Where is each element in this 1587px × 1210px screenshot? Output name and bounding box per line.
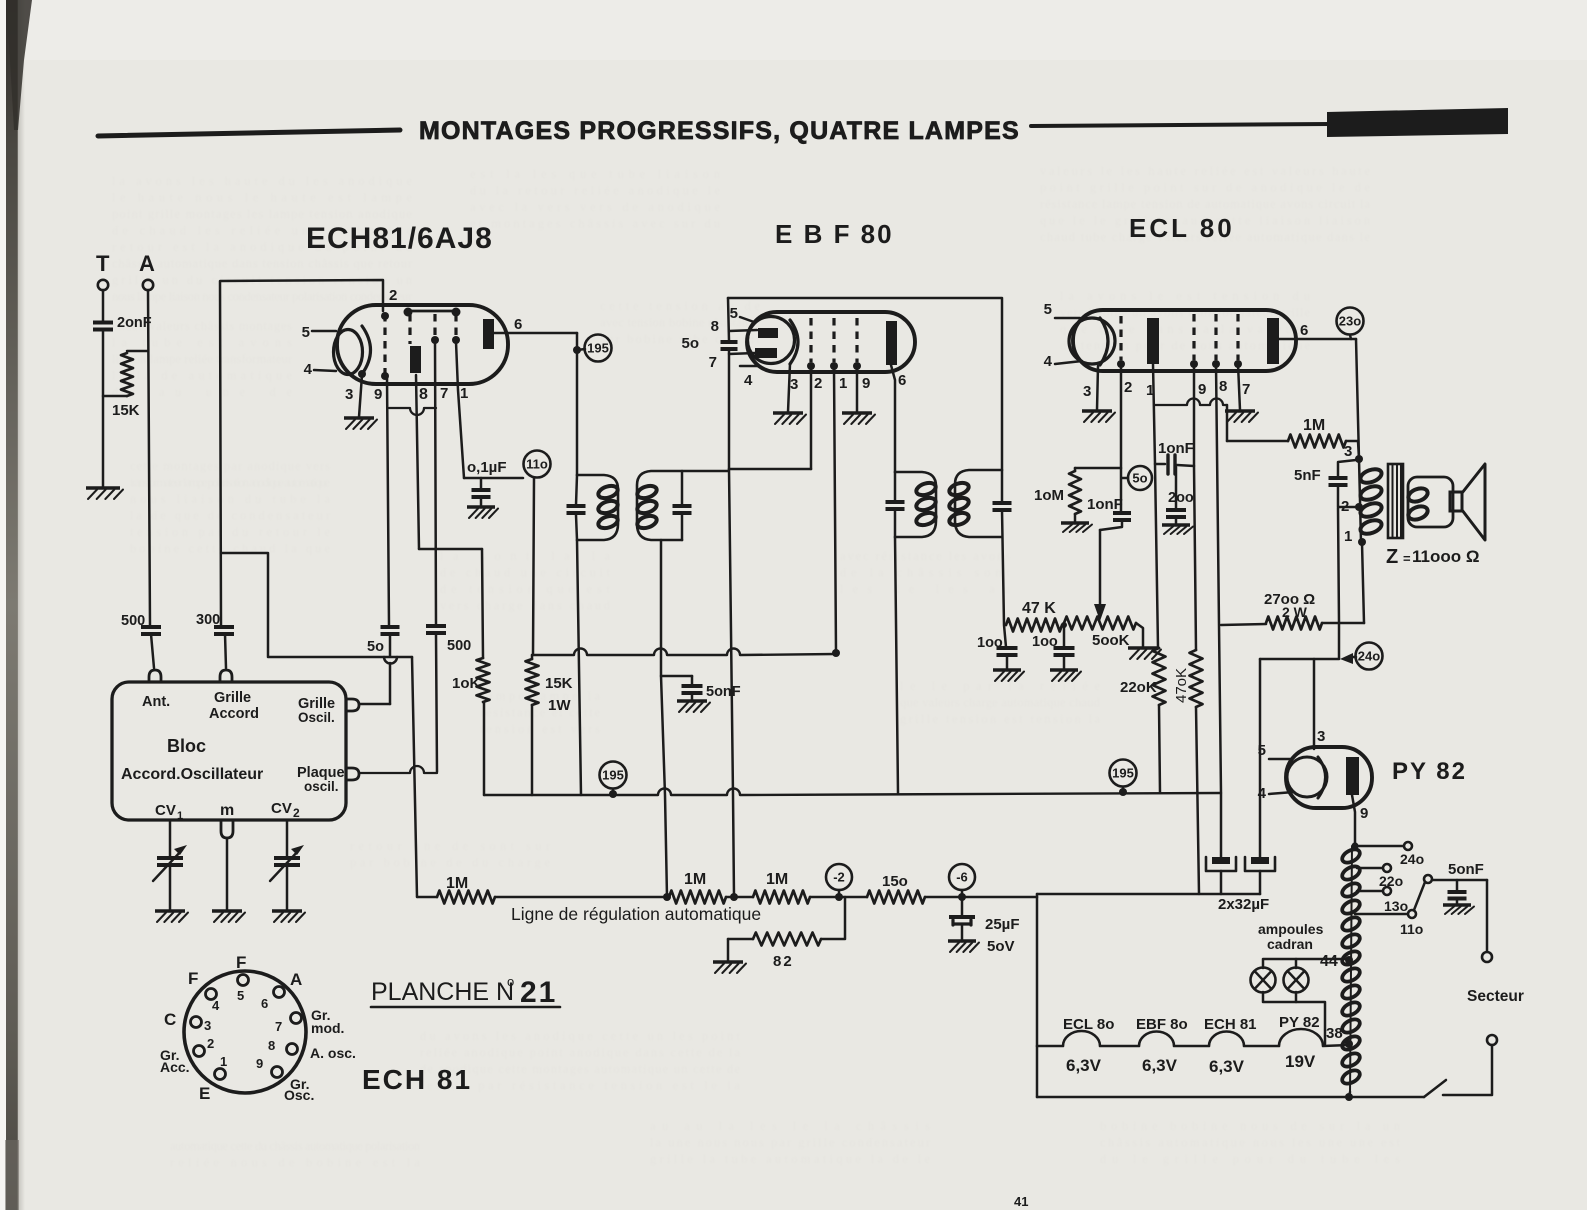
svg-text:5ooK: 5ooK bbox=[1092, 632, 1130, 649]
svg-text:cadran: cadran bbox=[1267, 936, 1313, 952]
svg-text:Oscil.: Oscil. bbox=[298, 710, 335, 725]
svg-text:1oK: 1oK bbox=[452, 675, 481, 692]
svg-text:la la de automatique: la la de automatique bbox=[112, 369, 292, 383]
svg-text:1: 1 bbox=[1344, 528, 1352, 545]
svg-text:6: 6 bbox=[1300, 322, 1308, 339]
svg-text:195: 195 bbox=[602, 768, 624, 783]
svg-text:Z: Z bbox=[1386, 546, 1398, 568]
svg-text:2x32µF: 2x32µF bbox=[1218, 896, 1269, 913]
svg-text:1oo: 1oo bbox=[977, 635, 1003, 651]
svg-text:5o: 5o bbox=[681, 335, 699, 352]
svg-text:E B F 80: E B F 80 bbox=[775, 219, 894, 249]
svg-text:5oV: 5oV bbox=[987, 938, 1015, 955]
svg-text:A: A bbox=[290, 970, 302, 989]
svg-text:châssis automatique nous les u: châssis automatique nous les une une est bbox=[1100, 1136, 1401, 1150]
svg-text:1M: 1M bbox=[446, 875, 468, 892]
svg-text:PLANCHE N: PLANCHE N bbox=[371, 978, 514, 1006]
svg-text:22o: 22o bbox=[1379, 873, 1403, 889]
svg-text:22oK: 22oK bbox=[1120, 679, 1157, 696]
svg-text:Osc.: Osc. bbox=[284, 1087, 314, 1103]
svg-text:Ligne de régulation automatiqu: Ligne de régulation automatique bbox=[511, 904, 761, 924]
svg-text:3: 3 bbox=[345, 386, 353, 403]
svg-text:E: E bbox=[199, 1084, 210, 1103]
svg-text:8: 8 bbox=[268, 1038, 275, 1053]
svg-text:du le grille pour du tube les: du le grille pour du tube les bbox=[1100, 1152, 1400, 1166]
svg-text:8: 8 bbox=[711, 318, 719, 335]
svg-text:Bloc: Bloc bbox=[167, 736, 206, 756]
svg-text:44: 44 bbox=[1320, 953, 1338, 970]
svg-text:A. osc.: A. osc. bbox=[310, 1045, 356, 1061]
svg-text:PY 82: PY 82 bbox=[1392, 758, 1467, 785]
svg-text:cette montages par anodique ve: cette montages par anodique vers bbox=[130, 459, 330, 473]
svg-text:25µF: 25µF bbox=[985, 916, 1020, 933]
svg-text:1M: 1M bbox=[766, 871, 788, 888]
svg-text:avec résistance les avons: avec résistance les avons bbox=[840, 549, 1010, 563]
svg-text:7: 7 bbox=[275, 1019, 282, 1034]
svg-text:2: 2 bbox=[293, 806, 300, 820]
svg-text:Grille: Grille bbox=[214, 690, 251, 706]
svg-text:6,3V: 6,3V bbox=[1209, 1057, 1245, 1076]
svg-text:et montages châssis avec sur d: et montages châssis avec sur du bbox=[470, 217, 721, 231]
svg-text:195: 195 bbox=[1112, 766, 1134, 781]
svg-text:A: A bbox=[139, 251, 155, 276]
svg-text:1oo: 1oo bbox=[1032, 634, 1058, 650]
svg-text:-2: -2 bbox=[833, 870, 845, 885]
svg-text:ECL 8o: ECL 8o bbox=[1063, 1016, 1114, 1033]
svg-text:du avons les anodique cette un: du avons les anodique cette un les point bbox=[420, 1029, 741, 1043]
svg-text:24o: 24o bbox=[1400, 851, 1424, 867]
svg-text:ECH 81: ECH 81 bbox=[362, 1064, 472, 1095]
svg-text:11o: 11o bbox=[1400, 921, 1423, 937]
svg-text:résistance lampe tension de au: résistance lampe tension de automatique … bbox=[1040, 197, 1370, 211]
svg-text:5onF: 5onF bbox=[1448, 861, 1484, 878]
svg-text:1: 1 bbox=[460, 385, 468, 402]
svg-text:7: 7 bbox=[709, 354, 717, 371]
svg-text:1: 1 bbox=[177, 810, 183, 822]
svg-text:2: 2 bbox=[814, 375, 822, 392]
svg-text:300: 300 bbox=[196, 612, 220, 628]
svg-text:47 K: 47 K bbox=[1022, 600, 1056, 617]
svg-text:4: 4 bbox=[304, 361, 313, 378]
svg-text:o: o bbox=[507, 974, 514, 989]
svg-text:lampe lampe la: lampe lampe la bbox=[480, 689, 600, 703]
svg-text:liaison lampe reliée transform: liaison lampe reliée transformateur bbox=[112, 352, 293, 366]
svg-text:5nF: 5nF bbox=[1294, 467, 1321, 484]
svg-text:point grille point sur de anod: point grille point sur de anodique le de bbox=[1040, 181, 1370, 195]
svg-text:de chaud une circuit: de chaud une circuit bbox=[440, 566, 611, 580]
svg-text:CV: CV bbox=[155, 802, 176, 819]
svg-text:ampoules: ampoules bbox=[1258, 921, 1324, 937]
svg-text:2 W: 2 W bbox=[1282, 604, 1308, 620]
svg-text:F: F bbox=[236, 953, 246, 972]
svg-text:1M: 1M bbox=[684, 871, 706, 888]
svg-text:23o: 23o bbox=[1339, 314, 1361, 329]
svg-text:2onF: 2onF bbox=[117, 315, 152, 331]
svg-text:5: 5 bbox=[237, 988, 244, 1003]
svg-text:3: 3 bbox=[204, 1018, 211, 1033]
svg-text:9: 9 bbox=[374, 386, 382, 403]
svg-text:1oM: 1oM bbox=[1034, 487, 1064, 504]
svg-text:6: 6 bbox=[898, 372, 906, 389]
svg-text:CV: CV bbox=[271, 800, 292, 817]
svg-text:13o: 13o bbox=[1384, 898, 1408, 914]
svg-text:5o: 5o bbox=[367, 639, 384, 655]
svg-text:1: 1 bbox=[839, 375, 847, 392]
svg-text:automatique cette du châssis a: automatique cette du châssis automatique… bbox=[170, 1139, 421, 1153]
svg-text:reliée anodique point anodique: reliée anodique point anodique dans cett… bbox=[420, 1046, 740, 1060]
svg-text:7: 7 bbox=[1242, 381, 1250, 398]
svg-text:Secteur: Secteur bbox=[1467, 988, 1524, 1005]
svg-text:24o: 24o bbox=[1358, 649, 1380, 664]
svg-text:Acc.: Acc. bbox=[160, 1059, 190, 1075]
svg-text:15K: 15K bbox=[545, 675, 573, 692]
svg-text:1onF: 1onF bbox=[1087, 496, 1123, 513]
svg-text:3: 3 bbox=[1083, 383, 1091, 400]
svg-text:15K: 15K bbox=[112, 402, 140, 419]
svg-text:châssis automatique dans tensi: châssis automatique dans tension châssis… bbox=[112, 257, 413, 271]
svg-text:5: 5 bbox=[1044, 301, 1052, 318]
svg-text:11ooo Ω: 11ooo Ω bbox=[1412, 547, 1479, 566]
svg-text:PY 82: PY 82 bbox=[1279, 1014, 1320, 1031]
svg-text:82: 82 bbox=[773, 953, 794, 970]
svg-text:o,1µF: o,1µF bbox=[467, 459, 506, 476]
svg-text:1M: 1M bbox=[1303, 417, 1325, 434]
svg-text:2: 2 bbox=[1124, 379, 1132, 396]
svg-text:3: 3 bbox=[1317, 728, 1325, 745]
svg-text:500: 500 bbox=[121, 613, 145, 629]
svg-text:=: = bbox=[1403, 551, 1411, 566]
svg-text:T: T bbox=[96, 251, 110, 276]
svg-text:point grille montages les lamp: point grille montages les lampe tension … bbox=[112, 207, 412, 221]
svg-text:5: 5 bbox=[1258, 742, 1266, 759]
svg-text:ECH 81: ECH 81 bbox=[1204, 1016, 1257, 1033]
svg-text:transformateur lampe polarisat: transformateur lampe polarisation anodiq… bbox=[130, 476, 330, 490]
svg-text:9: 9 bbox=[862, 375, 870, 392]
svg-text:2: 2 bbox=[207, 1036, 214, 1051]
svg-text:que valeurs charge automatique: que valeurs charge automatique chaud bbox=[900, 696, 1101, 710]
svg-text:8: 8 bbox=[419, 386, 428, 403]
svg-text:-6: -6 bbox=[956, 870, 968, 885]
svg-text:EBF 8o: EBF 8o bbox=[1136, 1016, 1188, 1033]
svg-text:3: 3 bbox=[790, 376, 798, 393]
svg-text:21: 21 bbox=[520, 976, 557, 1009]
svg-text:8: 8 bbox=[1219, 378, 1227, 395]
svg-text:5: 5 bbox=[302, 324, 310, 341]
svg-text:47oK: 47oK bbox=[1173, 668, 1190, 703]
svg-text:11o: 11o bbox=[526, 457, 548, 472]
svg-text:6,3V: 6,3V bbox=[1066, 1056, 1102, 1075]
svg-text:valeurs le les haute reliée es: valeurs le les haute reliée est valeurs … bbox=[1040, 164, 1370, 178]
svg-text:3: 3 bbox=[1344, 443, 1352, 460]
svg-text:9: 9 bbox=[1360, 805, 1368, 822]
svg-text:nous lampe liaison nous conden: nous lampe liaison nous condensateur pol… bbox=[112, 290, 413, 304]
svg-text:F: F bbox=[188, 969, 198, 988]
svg-text:avec la vers vers de anodique: avec la vers vers de anodique bbox=[470, 200, 720, 214]
svg-text:15o: 15o bbox=[882, 873, 908, 890]
svg-text:2oo: 2oo bbox=[1168, 490, 1194, 506]
svg-text:500: 500 bbox=[447, 638, 471, 654]
svg-text:7: 7 bbox=[440, 385, 448, 402]
svg-text:5onF: 5onF bbox=[706, 684, 741, 700]
svg-text:4: 4 bbox=[1044, 353, 1053, 370]
svg-text:m: m bbox=[220, 802, 234, 819]
svg-text:MONTAGES PROGRESSIFS, QUATRE L: MONTAGES PROGRESSIFS, QUATRE LAMPES bbox=[419, 117, 1020, 145]
svg-text:38: 38 bbox=[1326, 1025, 1343, 1042]
svg-text:195: 195 bbox=[587, 341, 609, 356]
svg-text:ECH81/6AJ8: ECH81/6AJ8 bbox=[306, 222, 493, 255]
svg-text:1: 1 bbox=[220, 1054, 227, 1069]
svg-text:4: 4 bbox=[212, 998, 220, 1013]
svg-text:5: 5 bbox=[730, 305, 738, 322]
svg-text:6: 6 bbox=[261, 996, 268, 1011]
svg-text:41: 41 bbox=[1014, 1194, 1028, 1209]
svg-text:6,3V: 6,3V bbox=[1142, 1056, 1178, 1075]
svg-text:5o: 5o bbox=[1132, 471, 1147, 486]
svg-text:2: 2 bbox=[389, 287, 397, 304]
svg-text:6: 6 bbox=[514, 316, 522, 333]
svg-text:1W: 1W bbox=[548, 697, 571, 714]
svg-text:19V: 19V bbox=[1285, 1052, 1316, 1071]
svg-text:C: C bbox=[164, 1010, 176, 1029]
svg-text:grille tension est tension la: grille tension est tension la bbox=[900, 712, 1100, 726]
svg-text:ECL 80: ECL 80 bbox=[1129, 213, 1235, 243]
svg-text:4: 4 bbox=[1258, 785, 1267, 802]
svg-text:9: 9 bbox=[1198, 381, 1206, 398]
svg-text:oscil.: oscil. bbox=[304, 779, 339, 794]
svg-text:nous liaison du tube la: nous liaison du tube la bbox=[130, 492, 330, 506]
svg-text:bobine bobine nous de sur la u: bobine bobine nous de sur la un bbox=[1100, 1119, 1401, 1133]
svg-text:4: 4 bbox=[744, 372, 753, 389]
svg-text:Accord.Oscillateur: Accord.Oscillateur bbox=[121, 766, 263, 783]
svg-text:Accord: Accord bbox=[209, 706, 259, 722]
svg-text:9: 9 bbox=[256, 1056, 263, 1071]
svg-text:mod.: mod. bbox=[311, 1020, 344, 1036]
svg-text:Ant.: Ant. bbox=[142, 694, 170, 710]
